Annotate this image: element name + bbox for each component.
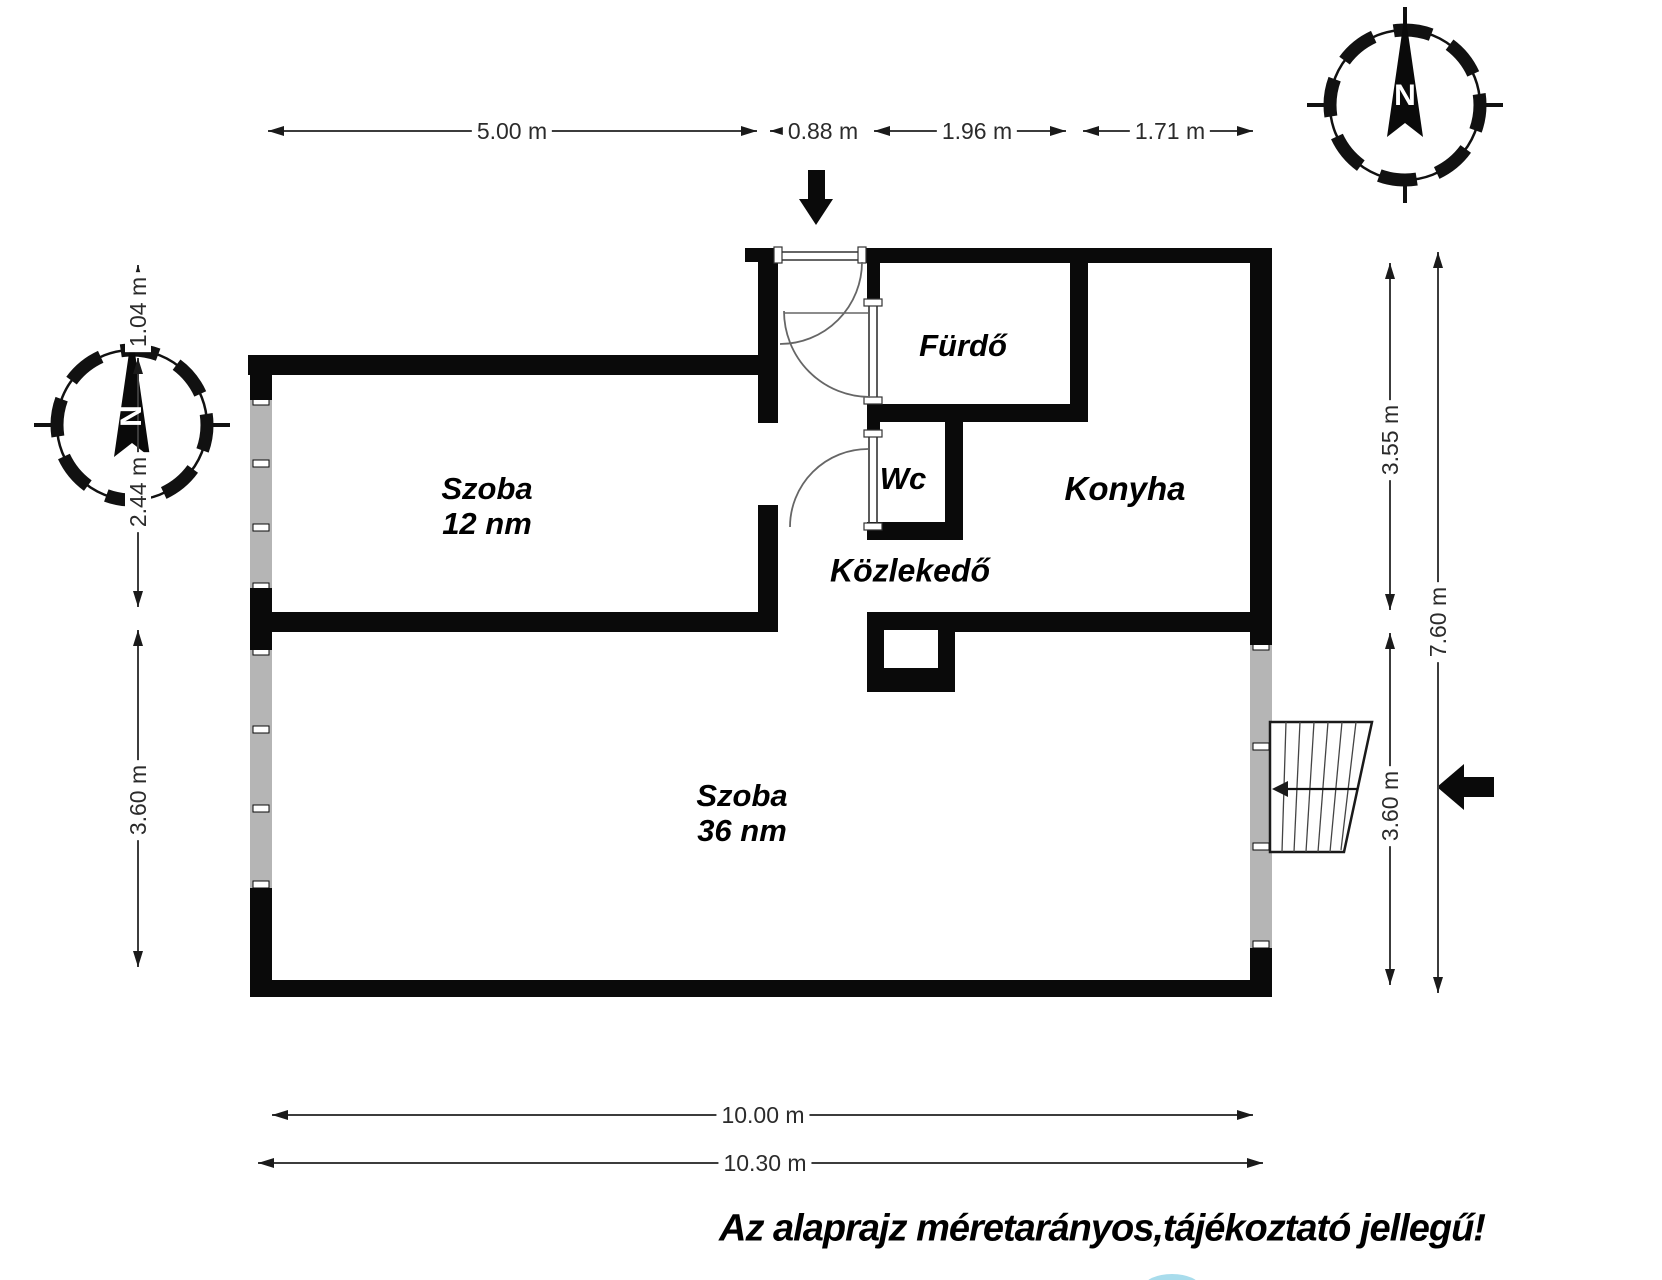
watermark-artifact xyxy=(1144,1274,1200,1280)
doors xyxy=(774,247,882,530)
room-label-szoba12: Szoba 12 nm xyxy=(441,471,532,541)
room-szoba36-name: Szoba xyxy=(696,778,787,813)
room-label-szoba36: Szoba 36 nm xyxy=(696,778,787,848)
floor-plan-page: 5.00 m 0.88 m 1.96 m 1.71 m 1.04 m 2.44 … xyxy=(0,0,1662,1280)
compass-north-letter-left: N xyxy=(115,405,149,427)
entrance-arrow-right xyxy=(1437,764,1494,810)
bathroom-door-arc xyxy=(784,311,870,397)
room-label-furdo: Fürdő xyxy=(919,328,1007,364)
wc-door-arc xyxy=(790,449,868,527)
dim-top-entry: 0.88 m xyxy=(783,118,863,144)
room-szoba12-area: 12 nm xyxy=(441,506,532,541)
dim-left-szoba36: 3.60 m xyxy=(125,760,151,840)
dim-bottom-inner: 10.00 m xyxy=(716,1102,809,1128)
room-szoba12-name: Szoba xyxy=(441,471,532,506)
floor-plan-drawing xyxy=(0,0,1662,1280)
disclaimer-text: Az alaprajz méretarányos,tájékoztató jel… xyxy=(719,1208,1485,1251)
dim-right-upper: 3.55 m xyxy=(1377,400,1403,480)
compass-north-letter-right: N xyxy=(1394,79,1416,113)
dimension-lines xyxy=(133,126,1443,1168)
dim-right-lower: 3.60 m xyxy=(1377,766,1403,846)
room-label-konyha: Konyha xyxy=(1064,470,1185,508)
dim-left-offset: 1.04 m xyxy=(125,272,151,352)
stairs xyxy=(1270,722,1372,852)
entry-door-arc xyxy=(780,262,862,344)
dim-right-total: 7.60 m xyxy=(1425,582,1451,662)
room-szoba36-area: 36 nm xyxy=(696,813,787,848)
walls xyxy=(248,248,1272,997)
entrance-arrow-top xyxy=(799,170,833,225)
dim-top-szoba12: 5.00 m xyxy=(472,118,552,144)
room-label-wc: Wc xyxy=(880,461,927,497)
dim-top-furdo: 1.96 m xyxy=(937,118,1017,144)
room-label-kozlekedo: Közlekedő xyxy=(830,553,990,590)
dim-left-szoba12: 2.44 m xyxy=(125,452,151,532)
dim-top-konyha: 1.71 m xyxy=(1130,118,1210,144)
dim-bottom-outer: 10.30 m xyxy=(718,1150,811,1176)
